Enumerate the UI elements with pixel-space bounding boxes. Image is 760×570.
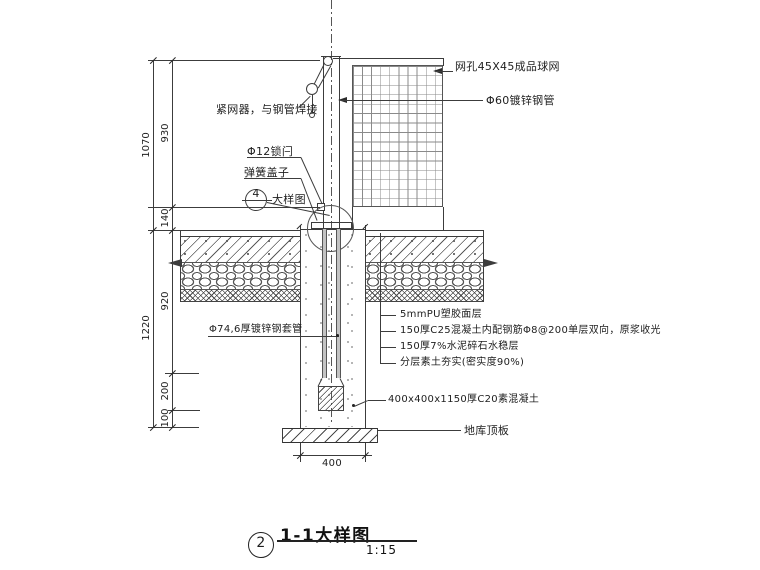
dim-text-1070: 1070	[141, 123, 153, 167]
dim-text-930: 930	[160, 111, 172, 155]
net-top-rail	[333, 58, 443, 59]
compacted-soil-hatch	[180, 290, 301, 302]
sleeve-line	[340, 229, 341, 378]
section-break-arrow-right	[484, 259, 498, 267]
title-number: 2	[248, 537, 274, 549]
footing-right-edge	[365, 225, 366, 428]
leader-line	[247, 157, 301, 158]
dim-text-400: 400	[312, 458, 352, 470]
drawing-scale: 1:15	[366, 543, 397, 557]
layer-label-pu: 5mmPU塑胶面层	[400, 309, 482, 321]
gravel-layer-hatch	[365, 263, 483, 290]
title-underline	[277, 540, 417, 542]
surface-line	[180, 230, 301, 231]
net-frame-line	[443, 58, 444, 66]
sleeve-line	[336, 229, 337, 378]
tensioner-pulley-mid	[306, 83, 318, 95]
tensioner-label: 紧网器，与钢管焊接	[216, 103, 318, 116]
layer-leader-tick	[380, 331, 396, 332]
detail-ref-number: 4	[245, 188, 267, 200]
layer-leader-tick	[380, 363, 396, 364]
leader-dot	[336, 334, 339, 337]
leader-line	[208, 336, 339, 337]
footing-label: 400x400x1150厚C20素混凝土	[388, 394, 539, 406]
post-right-edge	[339, 57, 340, 230]
dim-text-140: 140	[160, 196, 172, 240]
dim-text-920: 920	[160, 279, 172, 323]
compacted-soil-hatch	[365, 290, 483, 302]
leader-line	[378, 430, 461, 431]
dim-text-100: 100	[160, 396, 172, 440]
layer-leader-tick	[380, 315, 396, 316]
concrete-layer-hatch	[180, 237, 301, 263]
section-break-arrow-left	[168, 259, 182, 267]
leader-line	[341, 100, 483, 101]
leader-line	[436, 71, 453, 72]
ball-net-grid	[352, 65, 443, 207]
sleeve-label: Φ74,6厚镀锌钢套管	[209, 324, 302, 336]
layer-label-c25: 150厚C25混凝土内配钢筋Φ8@200单层双向，原浆收光	[400, 325, 661, 337]
slab-left-edge	[282, 428, 283, 443]
dim-line-bottom	[293, 455, 372, 456]
leader-line	[244, 178, 301, 179]
dim-text-1220: 1220	[141, 306, 153, 350]
detail-ref-divider	[242, 200, 272, 201]
layer-leader-vertical	[380, 233, 381, 363]
detail-drawing-canvas: 1070 1220 930 140 920 200 100 400 5mmPU塑…	[0, 0, 760, 570]
concrete-layer-hatch	[365, 237, 483, 263]
layer-leader-tick	[380, 347, 396, 348]
sleeve-line	[322, 229, 323, 378]
drawing-title: 1-1大样图	[280, 521, 371, 546]
layer-label-stabilized: 150厚7%水泥碎石水稳层	[400, 341, 519, 353]
sleeve-line	[326, 229, 327, 378]
sleeve-bottom-plug	[318, 386, 344, 411]
net-frame-drop-right	[443, 207, 444, 230]
layer-label-soil: 分层素土夯实(密实度90%)	[400, 357, 524, 369]
surface-line	[365, 230, 483, 231]
net-label: 网孔45X45成品球网	[455, 60, 560, 73]
gravel-layer-hatch	[180, 263, 301, 290]
basement-slab-hatch	[282, 428, 377, 443]
dim-line-outer	[153, 60, 154, 427]
slab-label: 地库顶板	[464, 424, 509, 437]
pipe-label: Φ60镀锌钢管	[486, 94, 555, 107]
leader-line	[368, 400, 386, 401]
tensioner-arm	[318, 65, 332, 88]
